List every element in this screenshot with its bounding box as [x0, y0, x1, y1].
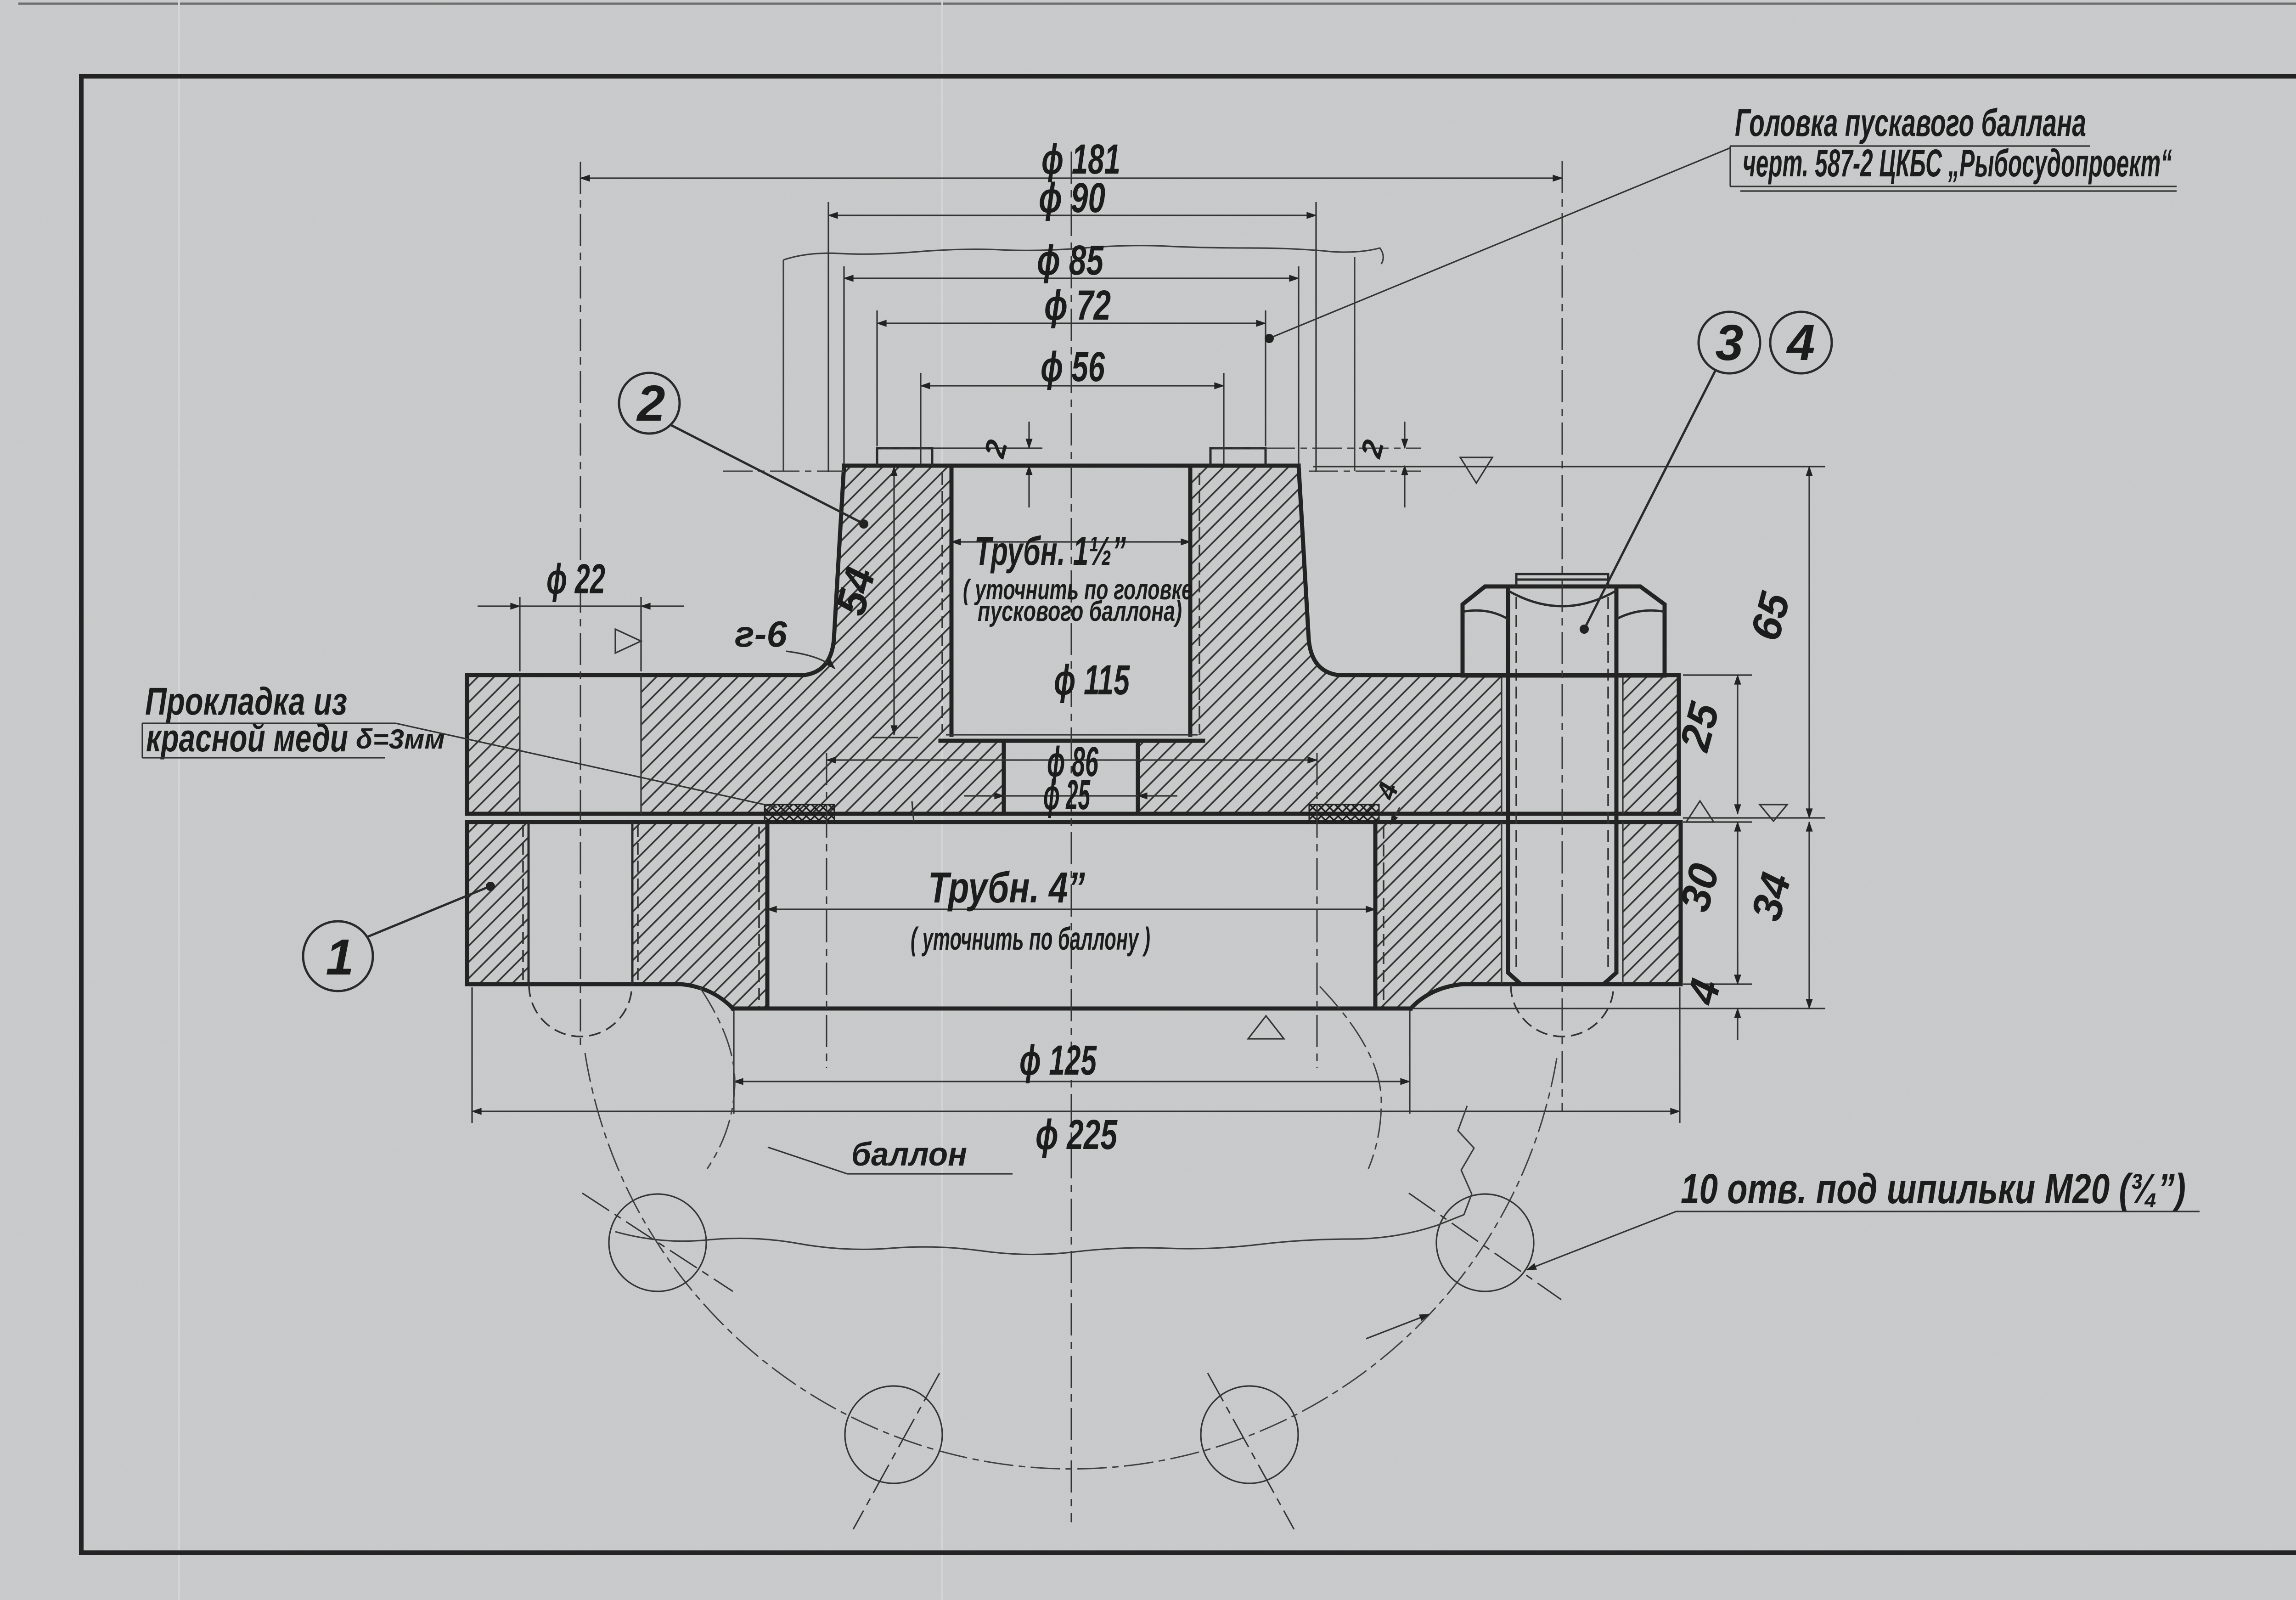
- svg-text:пускового баллона): пускового баллона): [978, 596, 1182, 627]
- svg-text:2: 2: [636, 375, 665, 432]
- svg-text:Головка пускавого баллана: Головка пускавого баллана: [1735, 101, 2086, 144]
- svg-text:ϕ 225: ϕ 225: [1035, 1111, 1118, 1158]
- svg-text:( уточнить по баллону ): ( уточнить по баллону ): [911, 921, 1150, 957]
- svg-text:Трубн. 4”: Трубн. 4”: [928, 863, 1085, 912]
- svg-text:10 отв. под шпильки М20 (¾”): 10 отв. под шпильки М20 (¾”): [1681, 1166, 2186, 1212]
- svg-text:черт. 587-2 ЦКБС „Рыбосудопро: черт. 587-2 ЦКБС „Рыбосудопроект“: [1743, 141, 2172, 185]
- svg-text:ϕ 25: ϕ 25: [1043, 772, 1091, 818]
- svg-text:ϕ 72: ϕ 72: [1044, 282, 1111, 329]
- svg-text:ϕ 85: ϕ 85: [1037, 237, 1104, 284]
- svg-text:1: 1: [326, 929, 354, 986]
- svg-text:баллон: баллон: [851, 1136, 967, 1173]
- svg-text:ϕ 56: ϕ 56: [1041, 344, 1105, 390]
- svg-text:ϕ 90: ϕ 90: [1039, 175, 1105, 221]
- svg-text:ϕ 115: ϕ 115: [1054, 657, 1130, 704]
- svg-text:4: 4: [1786, 315, 1815, 371]
- svg-text:3: 3: [1715, 315, 1743, 371]
- svg-text:ϕ 125: ϕ 125: [1019, 1037, 1097, 1084]
- svg-text:ϕ 22: ϕ 22: [546, 556, 605, 603]
- svg-text:δ=3мм: δ=3мм: [356, 724, 445, 755]
- svg-text:Трубн. 1½”: Трубн. 1½”: [974, 528, 1126, 574]
- svg-text:г-6: г-6: [735, 614, 787, 654]
